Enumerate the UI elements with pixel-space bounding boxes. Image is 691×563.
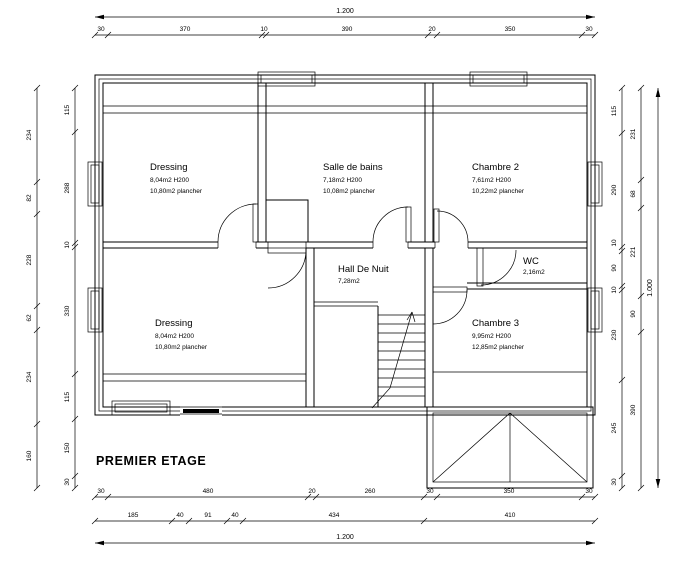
- walls: [95, 75, 595, 415]
- door-chambre3: [433, 287, 467, 324]
- dim-label: 150: [64, 442, 71, 453]
- dim-label: 370: [180, 26, 191, 33]
- wall-bains-chambre2: [425, 83, 433, 242]
- door-dressing-top: [218, 204, 258, 242]
- dim-label: 82: [26, 194, 33, 202]
- room-label-wc: WC 2,16m2: [523, 256, 545, 276]
- dim-label: 234: [26, 371, 33, 382]
- room-name: Chambre 2: [472, 162, 519, 173]
- room-name: WC: [523, 256, 539, 267]
- dimension-top-total: 1.200: [95, 8, 595, 19]
- window-bottom: [112, 401, 170, 415]
- dim-label: 115: [611, 105, 618, 116]
- dimension-right-total: 1.000: [647, 88, 660, 488]
- door-dressing-bottom: [268, 248, 306, 288]
- room-label-hall-de-nuit: Hall De Nuit 7,28m2: [338, 264, 389, 285]
- wall-wc-chambre3: [467, 283, 587, 289]
- dim-label: 260: [365, 488, 376, 495]
- room-area: 2,16m2: [523, 269, 545, 276]
- floor-plan-page: 1.200 30 370 10 390 20 350 30 30 480 20 …: [0, 0, 691, 563]
- stairs: [372, 306, 425, 408]
- room-label-dressing-top: Dressing 8,04m2 H200 10,80m2 plancher: [150, 162, 203, 195]
- room-name: Hall De Nuit: [338, 264, 389, 275]
- dim-label: 410: [505, 512, 516, 519]
- dim-label: 90: [611, 264, 618, 272]
- room-name: Salle de bains: [323, 162, 383, 173]
- wall-hall-chambre3: [425, 248, 433, 407]
- dim-right-total-label: 1.000: [647, 279, 654, 297]
- dim-label: 30: [97, 488, 105, 495]
- corridor-wall: [103, 242, 587, 248]
- dim-label: 160: [26, 450, 33, 461]
- exterior-wall-inner-line: [103, 83, 587, 407]
- dim-label: 330: [64, 305, 71, 316]
- dim-label: 10: [611, 239, 618, 247]
- dim-label: 230: [611, 329, 618, 340]
- door-wc: [477, 248, 516, 286]
- dim-label: 30: [585, 488, 593, 495]
- dimension-right-middle-chain: 231 68 221 90 390: [630, 85, 644, 491]
- door-chambre2: [434, 209, 468, 242]
- hall-landing-line: [314, 302, 378, 306]
- dim-label: 91: [204, 512, 212, 519]
- room-label-salle-de-bains: Salle de bains 7,18m2 H200 10,08m2 planc…: [323, 162, 383, 195]
- wall-dressing-hall: [306, 248, 314, 407]
- dim-label: 350: [505, 26, 516, 33]
- dim-label: 40: [231, 512, 239, 519]
- dim-label: 221: [630, 246, 637, 257]
- closet-block: [266, 200, 308, 242]
- dim-label: 20: [428, 26, 436, 33]
- dim-label: 434: [329, 512, 340, 519]
- dim-label: 40: [176, 512, 184, 519]
- dimension-bottom-total: 1.200: [95, 534, 595, 545]
- room-floor: 12,85m2 plancher: [472, 344, 525, 351]
- dim-label: 30: [585, 26, 593, 33]
- dim-label: 480: [203, 488, 214, 495]
- dim-label: 30: [611, 478, 618, 486]
- room-floor: 10,08m2 plancher: [323, 188, 376, 195]
- room-name: Dressing: [155, 318, 193, 329]
- room-floor: 10,80m2 plancher: [155, 344, 208, 351]
- exterior-wall-mid-line: [99, 79, 591, 411]
- dim-label: 390: [630, 404, 637, 415]
- dim-bottom-total-label: 1.200: [336, 534, 354, 541]
- room-label-chambre3: Chambre 3 9,95m2 H200 12,85m2 plancher: [472, 318, 525, 351]
- dimension-left-inner-chain: 115 288 10 330 115 150 30: [64, 85, 78, 491]
- room-floor: 10,22m2 plancher: [472, 188, 525, 195]
- windows: [88, 72, 602, 416]
- room-label-dressing-bottom: Dressing 8,04m2 H200 10,80m2 plancher: [155, 318, 208, 351]
- dim-label: 390: [342, 26, 353, 33]
- room-labels: Dressing 8,04m2 H200 10,80m2 plancher Sa…: [150, 162, 545, 351]
- dim-label: 30: [97, 26, 105, 33]
- dim-label: 62: [26, 314, 33, 322]
- dim-label: 90: [630, 310, 637, 318]
- room-name: Dressing: [150, 162, 188, 173]
- room-area: 7,61m2 H200: [472, 177, 511, 184]
- room-area: 7,28m2: [338, 278, 360, 285]
- dimension-left-outer-chain: 234 82 228 62 234 160: [26, 85, 40, 491]
- knee-wall-line-top: [103, 106, 587, 113]
- room-area: 7,18m2 H200: [323, 177, 362, 184]
- dimension-bottom-chain-2: 185 40 91 40 434 410: [92, 512, 598, 524]
- dim-label: 68: [630, 190, 637, 198]
- exterior-wall-outline: [95, 75, 595, 415]
- dim-label: 231: [630, 128, 637, 139]
- door-salle-de-bains: [373, 207, 411, 242]
- garage-roof-lines: [433, 413, 587, 482]
- dim-label: 115: [64, 391, 71, 402]
- dim-top-total-label: 1.200: [336, 8, 354, 15]
- dim-label: 10: [64, 241, 71, 249]
- dim-label: 10: [611, 286, 618, 294]
- entry-threshold: [180, 406, 222, 416]
- dim-label: 10: [260, 26, 268, 33]
- room-name: Chambre 3: [472, 318, 519, 329]
- dim-label: 245: [611, 422, 618, 433]
- dim-label: 30: [64, 478, 71, 486]
- floor-plan-drawing: 1.200 30 370 10 390 20 350 30 30 480 20 …: [0, 0, 691, 563]
- dim-label: 30: [426, 488, 434, 495]
- wall-dressing-bains: [258, 83, 266, 242]
- dim-label: 228: [26, 254, 33, 265]
- room-area: 8,04m2 H200: [155, 333, 194, 340]
- dim-label: 350: [504, 488, 515, 495]
- dim-label: 290: [611, 184, 618, 195]
- corridor-wall-caps: [218, 242, 468, 248]
- dim-label: 115: [64, 104, 71, 115]
- garage: [427, 407, 593, 488]
- knee-wall-line-bottom-left: [103, 374, 306, 381]
- room-area: 9,95m2 H200: [472, 333, 511, 340]
- dim-label: 288: [64, 182, 71, 193]
- dimension-right-inner-chain: 115 290 10 90 10 230 245 30: [611, 85, 625, 491]
- dim-label: 185: [128, 512, 139, 519]
- dimension-bottom-chain: 30 480 20 260 30 350 30: [92, 488, 598, 500]
- dim-label: 234: [26, 129, 33, 140]
- plan-title: PREMIER ETAGE: [96, 454, 206, 468]
- dim-label: 20: [308, 488, 316, 495]
- room-area: 8,04m2 H200: [150, 177, 189, 184]
- dimension-top-chain: 30 370 10 390 20 350 30: [92, 26, 598, 38]
- room-label-chambre2: Chambre 2 7,61m2 H200 10,22m2 plancher: [472, 162, 525, 195]
- room-floor: 10,80m2 plancher: [150, 188, 203, 195]
